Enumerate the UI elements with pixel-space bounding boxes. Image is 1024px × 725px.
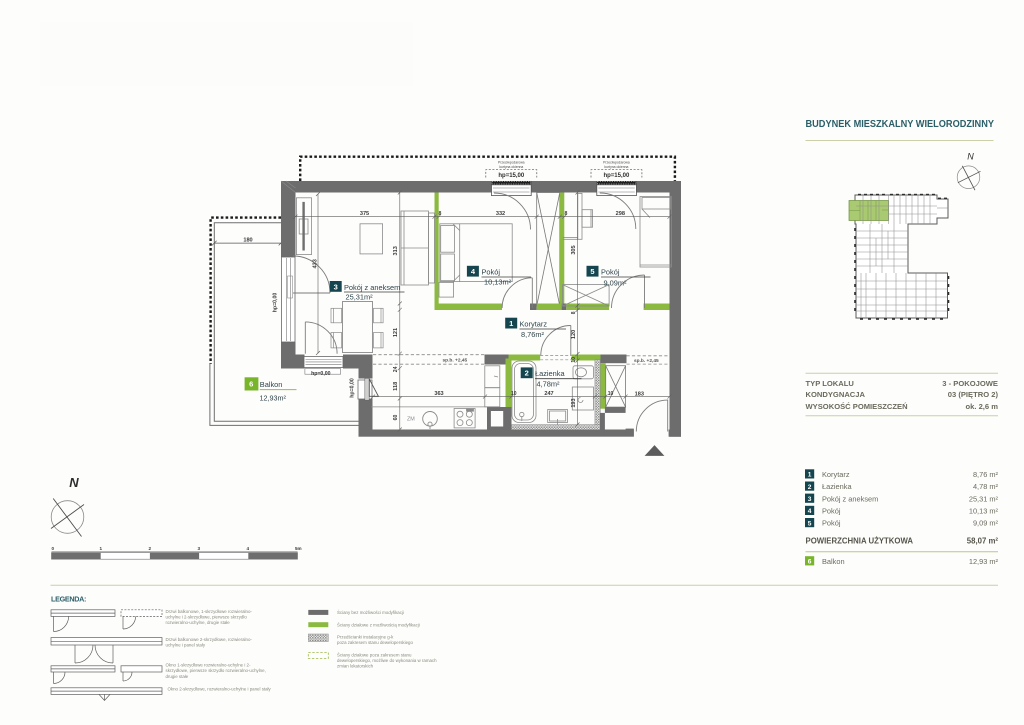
svg-text:2: 2 — [808, 484, 812, 491]
svg-text:298: 298 — [616, 211, 625, 217]
svg-text:Przedścianki instalacyjne g-k: Przedścianki instalacyjne g-k — [337, 634, 394, 639]
svg-text:24: 24 — [393, 366, 399, 372]
svg-text:8,76m²: 8,76m² — [521, 330, 545, 339]
svg-text:1: 1 — [509, 319, 513, 328]
svg-text:120: 120 — [571, 330, 577, 339]
svg-text:poza zakresem stanu dewelopers: poza zakresem stanu deweloperskiego — [337, 640, 413, 645]
svg-text:3: 3 — [808, 496, 812, 503]
svg-text:1: 1 — [100, 546, 103, 551]
svg-text:247: 247 — [544, 391, 553, 397]
svg-text:POWIERZCHNIA UŻYTKOWA: POWIERZCHNIA UŻYTKOWA — [806, 537, 914, 546]
svg-text:KONDYGNACJA: KONDYGNACJA — [806, 390, 866, 399]
svg-text:375: 375 — [360, 211, 369, 217]
svg-text:WYSOKOŚĆ POMIESZCZEŃ: WYSOKOŚĆ POMIESZCZEŃ — [806, 402, 908, 411]
svg-text:Pokój: Pokój — [482, 268, 501, 277]
svg-text:hp=0,00: hp=0,00 — [350, 378, 356, 398]
svg-text:hp=15,00: hp=15,00 — [498, 173, 525, 179]
svg-text:BUDYNEK MIESZKALNY WIELORODZIN: BUDYNEK MIESZKALNY WIELORODZINNY — [806, 119, 995, 130]
svg-text:10: 10 — [608, 391, 614, 397]
svg-text:Ściany działowe z możliwością: Ściany działowe z możliwością modyfikacj… — [337, 622, 420, 627]
svg-text:03 (PIĘTRO 2): 03 (PIĘTRO 2) — [948, 390, 999, 399]
svg-text:Pokój: Pokój — [601, 268, 620, 277]
svg-text:363: 363 — [434, 391, 443, 397]
svg-text:305: 305 — [571, 245, 577, 254]
svg-text:hp=0,00: hp=0,00 — [273, 293, 279, 313]
svg-text:N: N — [69, 475, 79, 490]
svg-text:121: 121 — [393, 328, 399, 337]
svg-text:25,31 m²: 25,31 m² — [969, 494, 999, 503]
svg-text:sp.b. +2,45: sp.b. +2,45 — [634, 358, 659, 364]
svg-text:skrzydłowe, pierwsze skrzydło: skrzydłowe, pierwsze skrzydło rozwieraln… — [166, 668, 266, 673]
svg-text:LEGENDA:: LEGENDA: — [51, 595, 86, 604]
svg-text:58,07 m²: 58,07 m² — [967, 537, 999, 546]
svg-text:3: 3 — [334, 282, 338, 291]
svg-text:8: 8 — [565, 211, 568, 217]
svg-text:Pokój z aneksem: Pokój z aneksem — [822, 494, 878, 503]
svg-text:TYP LOKALU: TYP LOKALU — [806, 379, 855, 388]
svg-text:10: 10 — [571, 357, 577, 363]
svg-text:25,31m²: 25,31m² — [346, 293, 374, 302]
svg-text:2: 2 — [149, 546, 152, 551]
svg-text:433: 433 — [313, 259, 319, 268]
svg-text:180: 180 — [243, 238, 252, 244]
svg-text:Balkon: Balkon — [260, 380, 283, 389]
svg-text:4,78 m²: 4,78 m² — [973, 482, 999, 491]
svg-text:hp=0,00: hp=0,00 — [311, 371, 331, 377]
svg-text:Korytarz: Korytarz — [520, 320, 548, 329]
svg-text:8: 8 — [439, 211, 442, 217]
svg-text:10: 10 — [511, 391, 517, 397]
svg-text:10,13m²: 10,13m² — [484, 278, 512, 287]
svg-text:118: 118 — [393, 382, 399, 391]
svg-text:Pokój z aneksem: Pokój z aneksem — [344, 283, 400, 292]
svg-text:ok. 2,6 m: ok. 2,6 m — [966, 402, 999, 411]
svg-text:9,09 m²: 9,09 m² — [973, 519, 999, 528]
svg-text:sp.b. +2,45: sp.b. +2,45 — [443, 357, 468, 363]
svg-text:uchylne i 2-skrzydłowe, pierws: uchylne i 2-skrzydłowe, pierwsze skrzydł… — [166, 615, 248, 620]
svg-text:Drzwi balkonowe 2-skrzydłowe,: Drzwi balkonowe 2-skrzydłowe, rozwieraln… — [166, 637, 253, 642]
svg-text:5m: 5m — [295, 546, 302, 551]
svg-text:60: 60 — [393, 415, 399, 421]
svg-text:N: N — [967, 152, 974, 162]
svg-text:5: 5 — [808, 520, 812, 527]
svg-text:Łazienka: Łazienka — [535, 369, 565, 378]
svg-text:kurtyna okienna: kurtyna okienna — [604, 165, 628, 169]
svg-text:193: 193 — [571, 398, 577, 407]
svg-text:Okno 2-skrzydłowe, rozwieralno: Okno 2-skrzydłowe, rozwieralno-uchylne i… — [168, 686, 272, 691]
svg-text:uchylne i panel stały: uchylne i panel stały — [166, 643, 206, 648]
svg-text:332: 332 — [496, 211, 505, 217]
svg-text:5: 5 — [590, 267, 594, 276]
svg-text:8,76 m²: 8,76 m² — [973, 470, 999, 479]
svg-text:3 - POKOJOWE: 3 - POKOJOWE — [942, 379, 998, 388]
svg-text:2: 2 — [525, 369, 529, 378]
svg-text:10,13 m²: 10,13 m² — [969, 507, 999, 516]
svg-text:6: 6 — [808, 559, 812, 566]
svg-text:0: 0 — [52, 546, 55, 551]
svg-text:deweloperskiego, możliwe do wy: deweloperskiego, możliwe do wykonania w … — [337, 658, 437, 663]
svg-text:12,93 m²: 12,93 m² — [969, 557, 999, 566]
svg-text:313: 313 — [393, 246, 399, 255]
svg-text:4: 4 — [808, 508, 812, 515]
svg-text:hp=15,00: hp=15,00 — [603, 173, 630, 179]
svg-text:12,93m²: 12,93m² — [260, 393, 287, 402]
svg-text:Korytarz: Korytarz — [822, 470, 850, 479]
svg-text:3: 3 — [198, 546, 201, 551]
svg-text:ZM: ZM — [407, 417, 415, 423]
svg-text:Pokój: Pokój — [822, 519, 841, 528]
svg-text:4: 4 — [247, 546, 250, 551]
svg-text:zmian lokatorskich: zmian lokatorskich — [337, 664, 374, 669]
svg-text:Łazienka: Łazienka — [822, 482, 852, 491]
svg-text:9,09m²: 9,09m² — [604, 279, 628, 288]
svg-text:drugie stałe: drugie stałe — [166, 674, 189, 679]
svg-text:kurtyna okienna: kurtyna okienna — [499, 165, 523, 169]
svg-text:Balkon: Balkon — [822, 557, 845, 566]
svg-text:Ściany bez możliwości modyfika: Ściany bez możliwości modyfikacji — [337, 610, 404, 615]
svg-text:183: 183 — [635, 392, 644, 398]
svg-text:6: 6 — [249, 379, 253, 388]
svg-text:8: 8 — [571, 311, 577, 314]
svg-text:4,78m²: 4,78m² — [537, 380, 561, 389]
svg-text:Pokój: Pokój — [822, 507, 841, 516]
svg-text:Drzwi balkonowe, 1-skrzydłowe: Drzwi balkonowe, 1-skrzydłowe rozwieraln… — [166, 609, 253, 614]
svg-text:rozwieralno-uchylne, drugie st: rozwieralno-uchylne, drugie stałe — [166, 620, 231, 625]
svg-text:Okno 1-skrzydłowe rozwieralno-: Okno 1-skrzydłowe rozwieralno-uchylne i … — [166, 663, 251, 668]
svg-text:Ściany działowe poza zakresem: Ściany działowe poza zakresem stanu — [337, 652, 412, 657]
svg-text:1: 1 — [808, 472, 812, 479]
